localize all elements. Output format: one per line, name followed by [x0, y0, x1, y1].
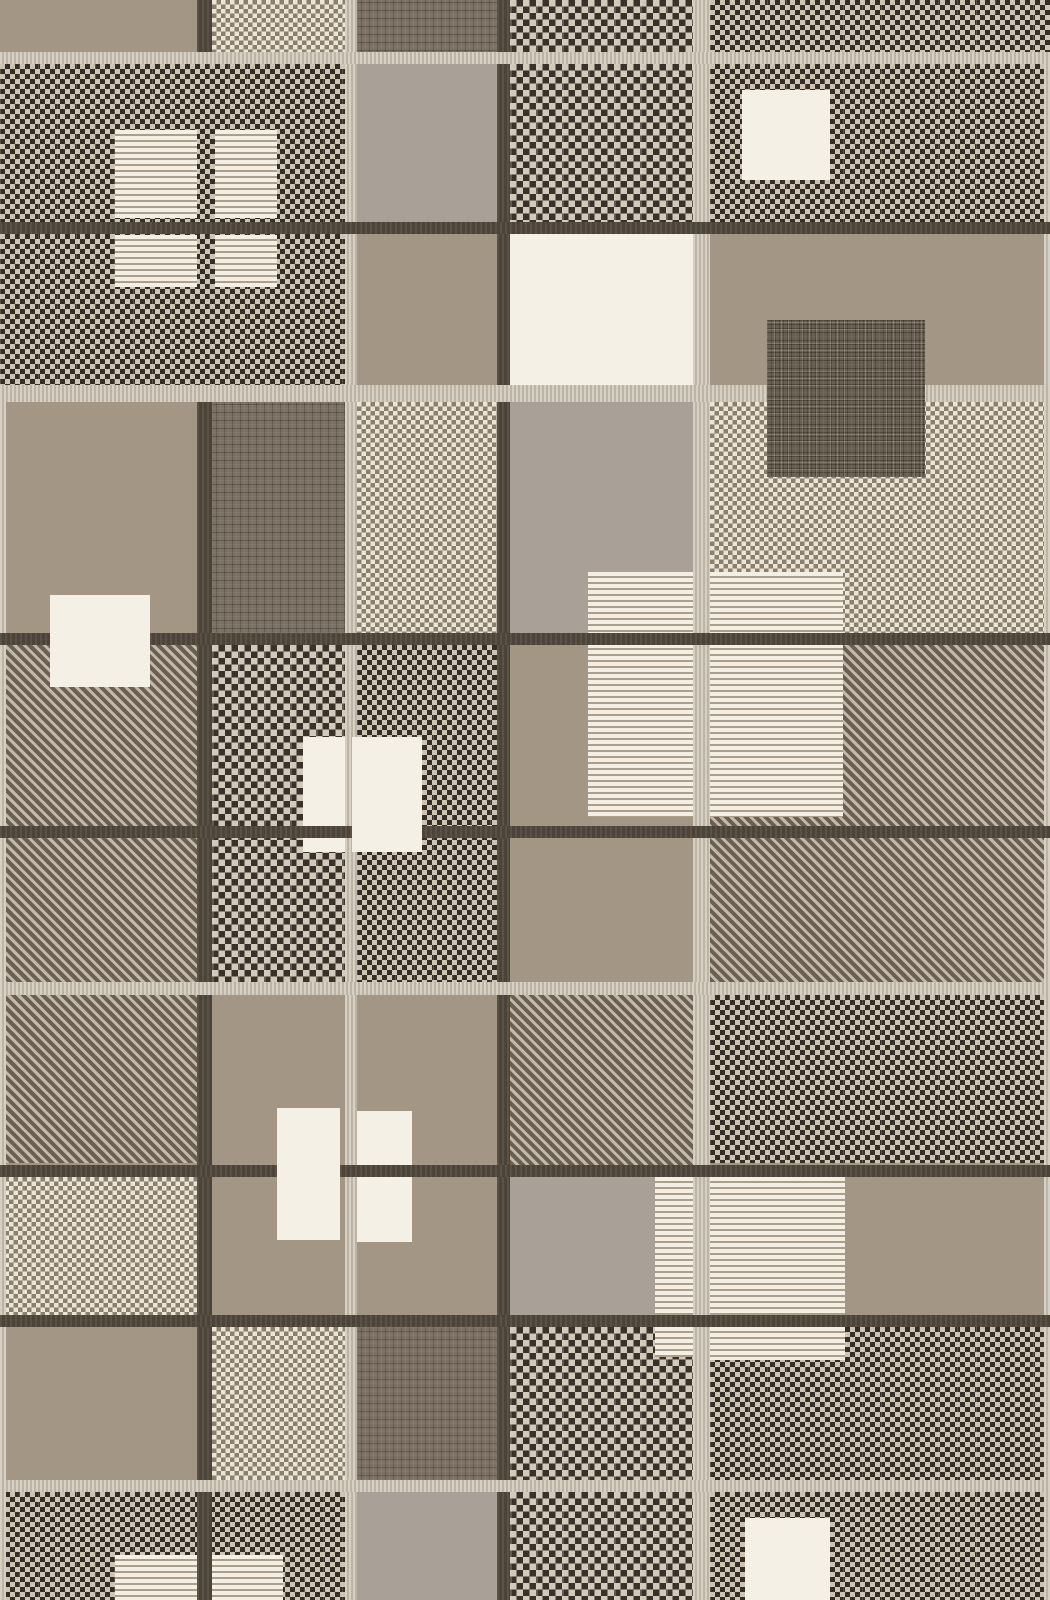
low-striped-block [710, 1177, 845, 1360]
r10-colE-cream-square [745, 1518, 830, 1600]
r1-colA-taupe [0, 0, 197, 52]
r9-colC-crosshatch [357, 1327, 497, 1480]
bottom-striped-square-right [210, 1555, 283, 1600]
weft-band-dark-4 [0, 1165, 1050, 1177]
top-striped-square-lower-right [215, 235, 277, 287]
weft-band-dark-3 [0, 826, 1050, 838]
r4-colC-light-checker [357, 402, 497, 633]
r2-colE-cream-square [742, 90, 830, 180]
r9-colB-light-checker [212, 1327, 345, 1480]
top-striped-square-upper-right [215, 130, 277, 218]
rug-photo [0, 0, 1050, 1600]
r2-colD-big-checker [510, 64, 693, 222]
r1-colD-big-checker [510, 0, 693, 52]
r2-colC-gray [357, 64, 497, 222]
r1-colE-dark-checker [710, 0, 1050, 52]
top-striped-square-lower-left [115, 235, 197, 287]
r3-colC-taupe [357, 234, 497, 402]
mid-striped-block-right [710, 572, 843, 817]
colA-cream-rect [50, 595, 150, 687]
weft-band-dark-2 [0, 633, 1050, 645]
low-striped-bar [655, 1177, 693, 1357]
r4-colB-crosshatch [212, 402, 345, 633]
r7-colD-twill [510, 995, 693, 1165]
warp-line-light-2 [693, 0, 710, 1600]
bottom-striped-square-left [115, 1555, 197, 1600]
left-edge-light-line [0, 402, 6, 1600]
mid-striped-block-left [588, 572, 693, 817]
r10-colC-gray [357, 1492, 497, 1600]
colE-dark-crosshatch-rect [767, 320, 925, 477]
r8-colA-light-checker [0, 1177, 197, 1315]
r9-colA-taupe [0, 1327, 197, 1480]
weft-band-light-1 [0, 52, 1050, 64]
weft-band-light-3 [0, 982, 1050, 995]
r5r6-colA-twill [0, 645, 197, 1163]
weft-band-dark-5 [0, 1315, 1050, 1327]
r1-colB-light-checker [212, 0, 345, 52]
colC-cream-square-mid [352, 737, 422, 852]
r10-colD-big-checker [510, 1492, 693, 1600]
r3-colD-big-cream-square [505, 234, 693, 385]
warp-line-dark-2 [497, 0, 510, 1600]
top-striped-square-upper-left [115, 130, 197, 218]
r7-colE-dark-checker [710, 995, 1050, 1163]
r1-colC-crosshatch [357, 0, 497, 55]
weft-band-light-4 [0, 1480, 1050, 1492]
weft-band-dark-1 [0, 222, 1050, 234]
colB-cream-square-low [277, 1108, 340, 1240]
